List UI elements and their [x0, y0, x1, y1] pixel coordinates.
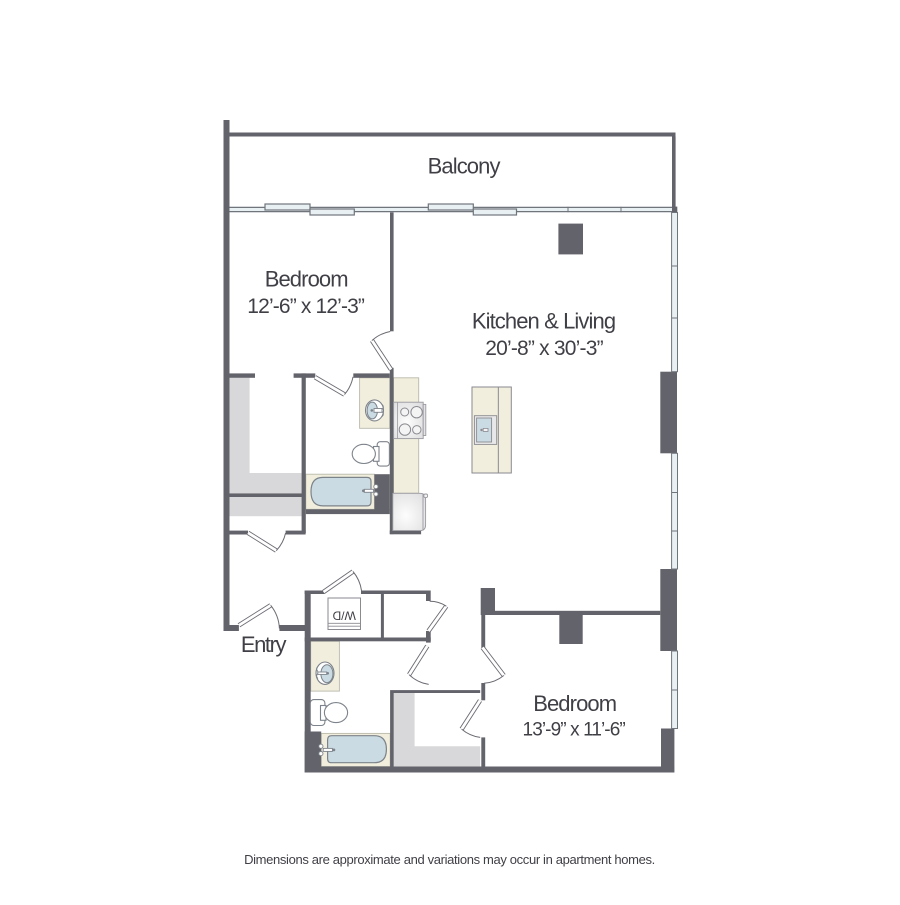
- svg-text:Bedroom: Bedroom: [533, 691, 616, 716]
- svg-text:Balcony: Balcony: [428, 153, 501, 178]
- svg-text:Kitchen & Living: Kitchen & Living: [472, 309, 615, 334]
- svg-text:20’-8” x 30’-3”: 20’-8” x 30’-3”: [485, 337, 603, 360]
- svg-text:W/D: W/D: [332, 609, 356, 623]
- svg-text:Entry: Entry: [241, 632, 287, 657]
- svg-text:12’-6” x 12’-3”: 12’-6” x 12’-3”: [247, 295, 365, 318]
- svg-text:Dimensions are approximate and: Dimensions are approximate and variation…: [244, 852, 655, 867]
- svg-text:13’-9” x 11’-6”: 13’-9” x 11’-6”: [523, 720, 626, 741]
- svg-text:Bedroom: Bedroom: [265, 266, 348, 291]
